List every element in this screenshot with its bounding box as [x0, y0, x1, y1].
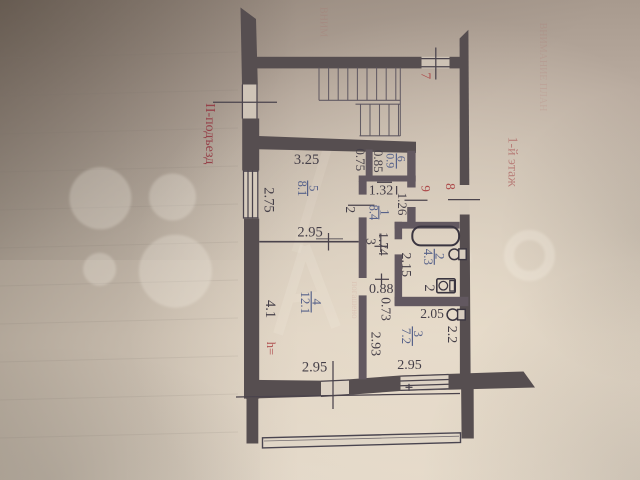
svg-text:2: 2	[343, 206, 358, 213]
svg-text:1.32: 1.32	[369, 184, 394, 199]
svg-text:0.9: 0.9	[384, 153, 398, 168]
svg-text:2.15: 2.15	[398, 253, 413, 278]
svg-text:1.74: 1.74	[376, 232, 391, 256]
svg-text:1-й этаж: 1-й этаж	[505, 137, 520, 188]
svg-text:7: 7	[419, 72, 434, 79]
svg-text:2: 2	[421, 284, 437, 291]
svg-text:ВНИМ: ВНИМ	[318, 7, 329, 37]
svg-text:2.95: 2.95	[397, 358, 422, 373]
svg-text:0.75: 0.75	[353, 148, 368, 171]
svg-text:0.88: 0.88	[369, 282, 394, 297]
svg-text:2.05: 2.05	[420, 306, 444, 321]
svg-text:h=: h=	[264, 342, 278, 355]
svg-text:4.1: 4.1	[262, 300, 278, 318]
svg-text:II-подъезд: II-подъезд	[202, 103, 217, 164]
svg-text:2.95: 2.95	[297, 224, 322, 240]
svg-text:0.73: 0.73	[379, 297, 394, 321]
svg-text:0.85: 0.85	[371, 150, 386, 173]
svg-text:8: 8	[443, 183, 458, 190]
svg-text:2.93: 2.93	[367, 332, 382, 357]
svg-text:4.3: 4.3	[421, 249, 436, 265]
svg-text:2.95: 2.95	[302, 359, 327, 375]
svg-text:2.75: 2.75	[260, 187, 276, 212]
svg-text:3.25: 3.25	[294, 152, 319, 168]
svg-text:2.2: 2.2	[444, 326, 459, 344]
svg-text:погашено: погашено	[350, 281, 360, 319]
svg-text:8.1: 8.1	[295, 181, 309, 197]
svg-text:ВНИМАНИЕ ПЛАН: ВНИМАНИЕ ПЛАН	[537, 23, 548, 112]
svg-text:9: 9	[418, 185, 433, 192]
svg-text:1.26: 1.26	[395, 193, 410, 216]
